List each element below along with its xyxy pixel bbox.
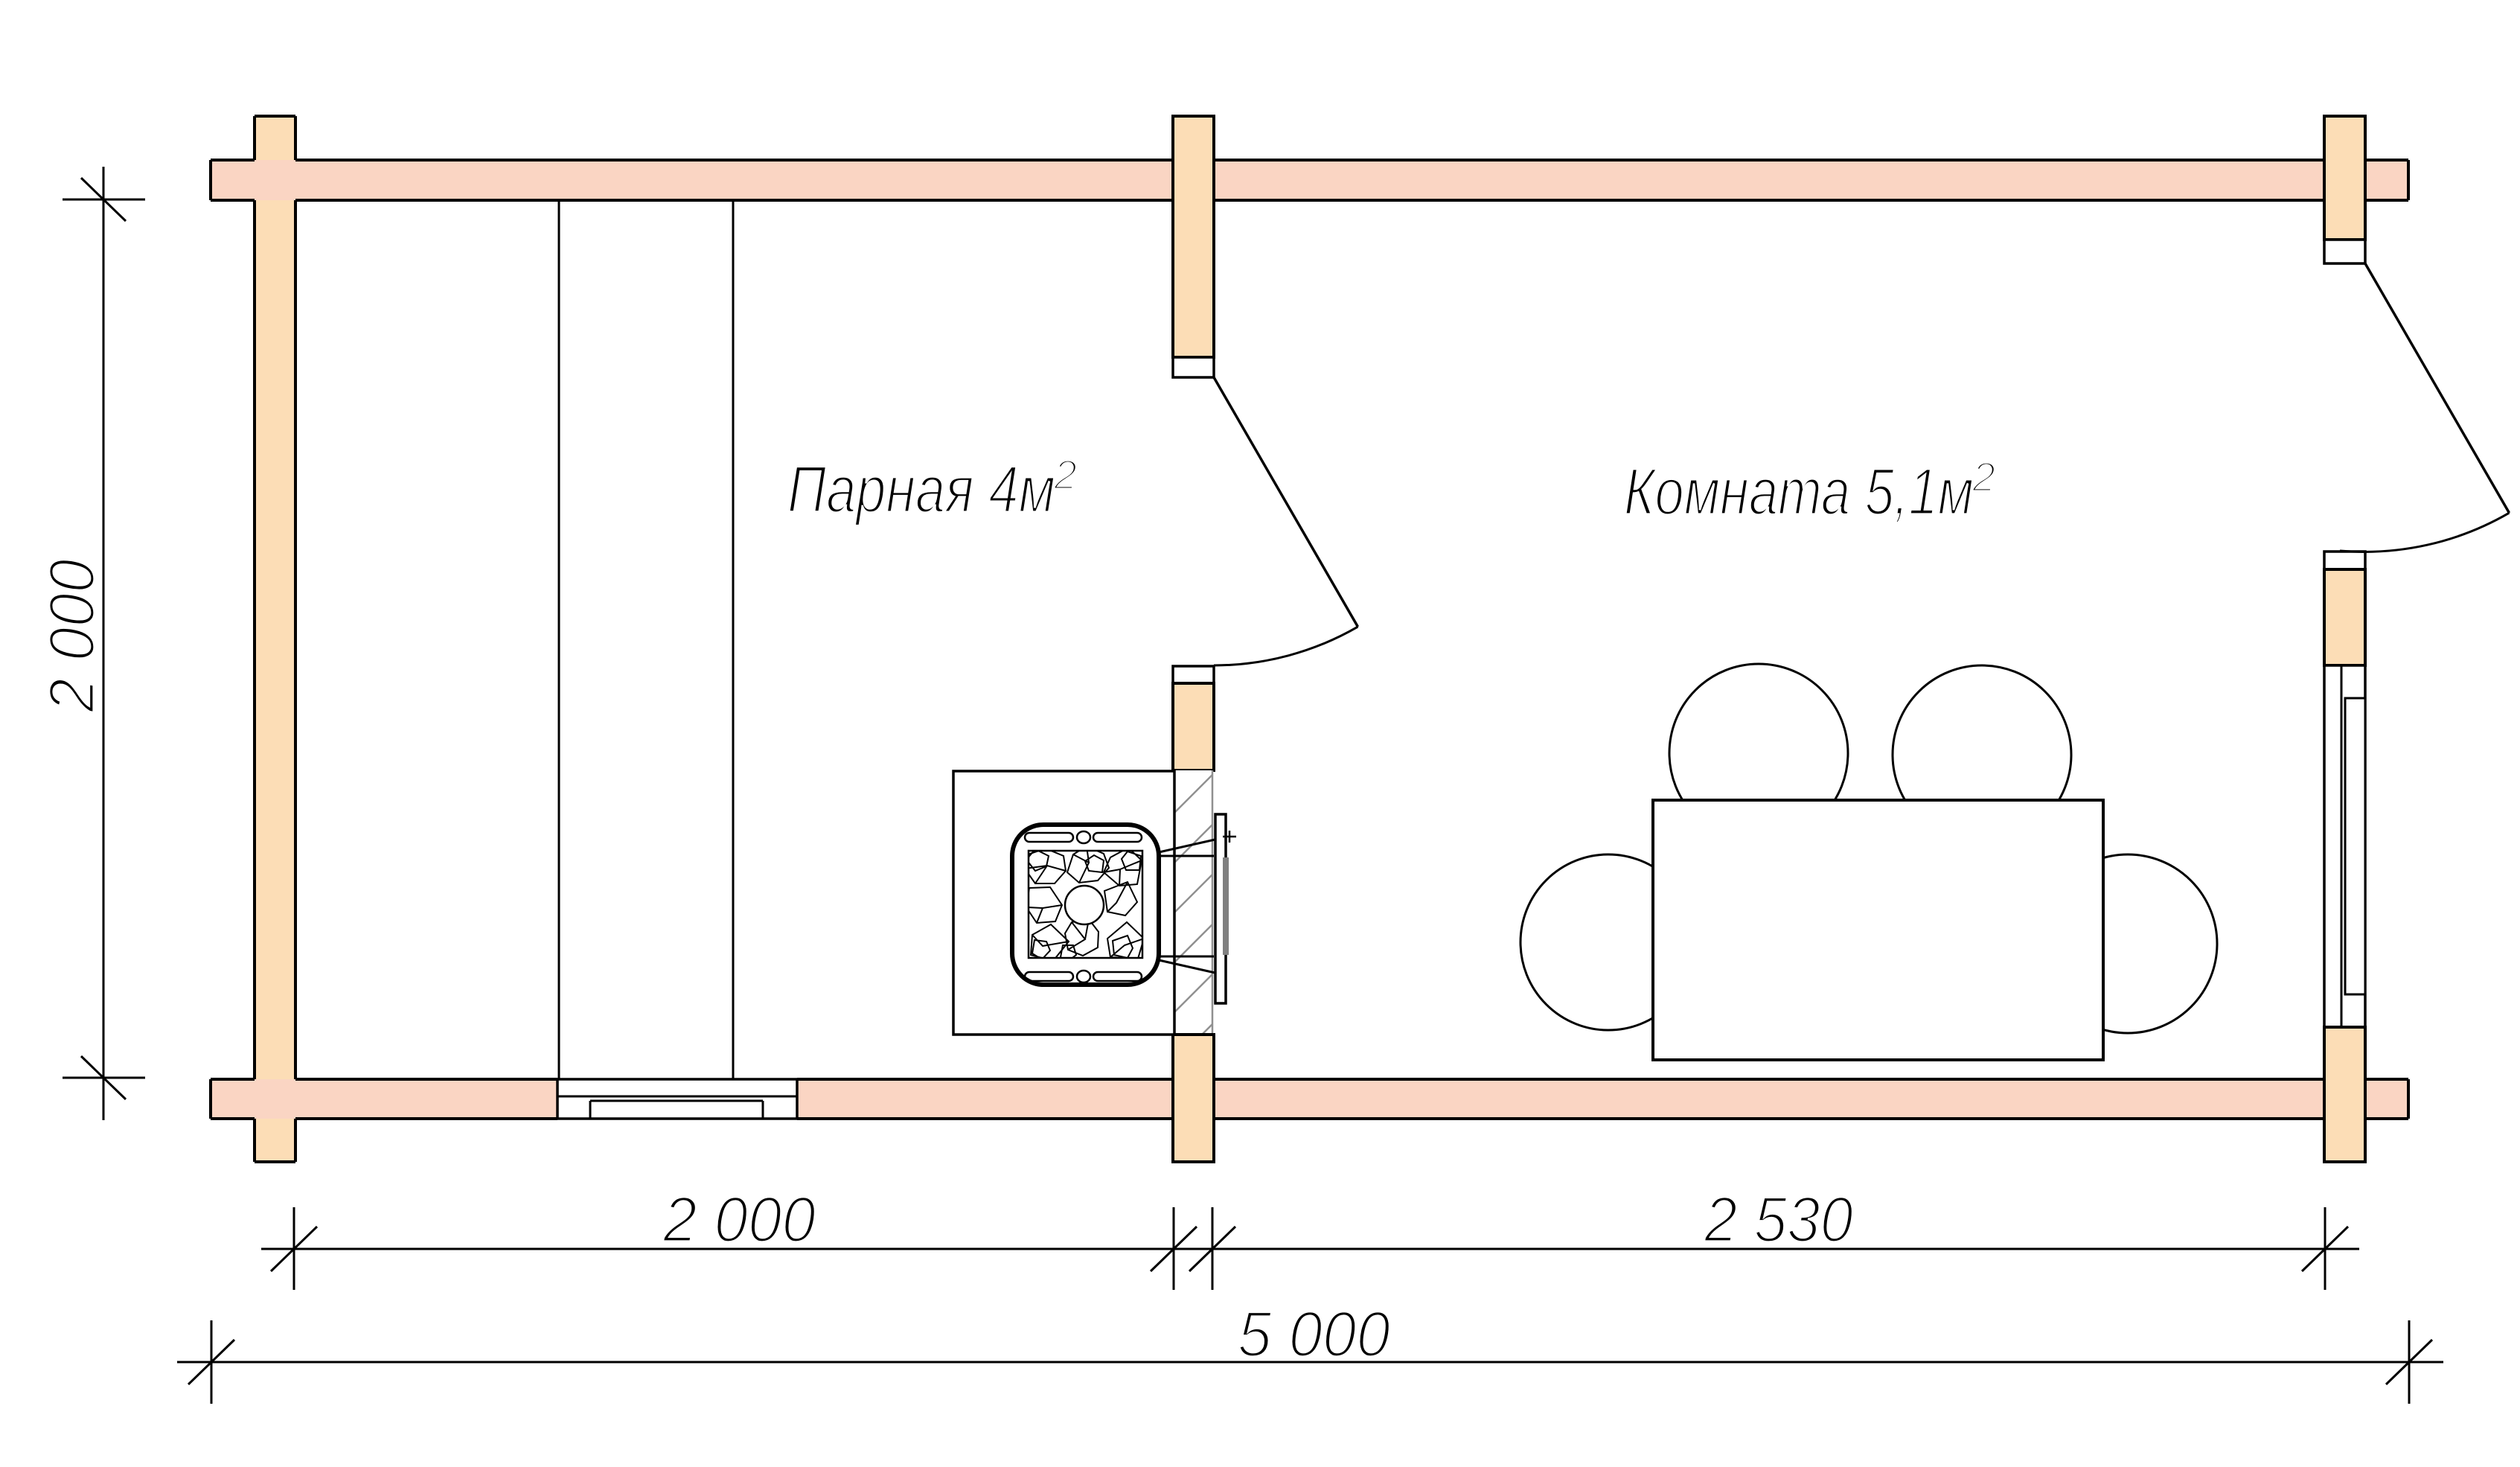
svg-text:2 000: 2 000 xyxy=(662,1184,816,1256)
svg-text:2: 2 xyxy=(1053,451,1077,498)
svg-text:5 000: 5 000 xyxy=(1238,1299,1390,1370)
svg-text:Парная 4м: Парная 4м xyxy=(787,452,1055,526)
svg-text:2 000: 2 000 xyxy=(36,559,108,713)
svg-text:2 530: 2 530 xyxy=(1704,1184,1853,1256)
svg-text:Комната 5,1м: Комната 5,1м xyxy=(1624,454,1974,528)
svg-text:2: 2 xyxy=(1971,453,1995,500)
